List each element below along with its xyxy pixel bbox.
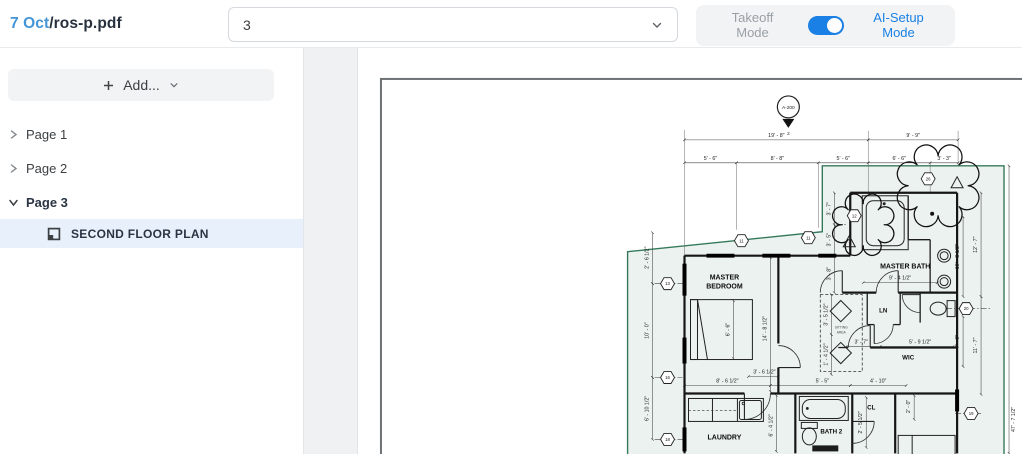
dim-label: 3' - 6 1/2" xyxy=(753,370,775,376)
keynote-tag: 19 xyxy=(969,411,974,416)
tree-item-page-3[interactable]: Page 3 xyxy=(0,185,303,219)
floor-plan-canvas[interactable]: A-200 2 19' - 8" 9' - 9" 5' - 6" xyxy=(357,47,1022,454)
keynote-tag: 11 xyxy=(806,235,811,240)
takeoff-mode-label: Takeoff Mode xyxy=(716,11,790,41)
toggle-knob xyxy=(827,18,842,33)
dim-label: 6' - 6" xyxy=(892,156,906,162)
chevron-down-icon xyxy=(651,19,663,31)
chevron-down-icon[interactable] xyxy=(8,197,26,208)
room-label-ln: LN xyxy=(879,308,888,315)
tree-leaf-second-floor-plan[interactable]: SECOND FLOOR PLAN xyxy=(0,219,303,248)
dim-label: 5' - 9 1/2" xyxy=(909,340,931,346)
shower-drain xyxy=(930,212,934,216)
dim-label: 2' - 5 1/2" xyxy=(858,411,864,433)
dim-label: 9' - 9" xyxy=(906,133,920,139)
dim-label: 10' - 0" xyxy=(645,322,651,339)
page-tree: Page 1 Page 2 Page 3 SECOND FLOOR PLAN xyxy=(0,117,303,248)
dim-label: 9' - 4 1/2" xyxy=(889,276,911,282)
vanity xyxy=(812,445,838,451)
keynote-tag: 11 xyxy=(739,238,744,243)
dim-label: 3' - 5" xyxy=(826,233,832,247)
pages-sidebar: Add... Page 1 Page 2 Page 3 SECOND FLO xyxy=(0,47,303,454)
drawing-viewer[interactable]: A-200 2 19' - 8" 9' - 9" 5' - 6" xyxy=(357,47,1022,454)
sitting-area-label: AREA xyxy=(837,331,847,335)
dim-label: 12' - 7" xyxy=(973,236,979,253)
breadcrumb-folder-link[interactable]: 7 Oct xyxy=(10,15,49,33)
dim-label: 8' - 6 1/2" xyxy=(716,378,738,384)
dim-label: 11' - 7" xyxy=(973,337,979,353)
keynote-tag: 13 xyxy=(665,281,670,286)
page-select-value: 3 xyxy=(243,17,251,33)
ai-setup-mode-label[interactable]: AI-Setup Mode xyxy=(862,11,936,41)
floorplan-icon xyxy=(47,227,61,241)
room-label-master-bedroom: MASTER xyxy=(710,275,739,282)
keynote-tag: 18 xyxy=(665,437,670,442)
dim-label: 5' - 6" xyxy=(837,156,851,162)
app-root: { "topbar": { "breadcrumb": { "folder": … xyxy=(0,0,1022,454)
dim-label: 4' - 10" xyxy=(870,378,887,384)
tree-item-label: Page 1 xyxy=(26,127,67,142)
dim-label: 3' - 7" xyxy=(826,202,832,216)
room-label-master-bedroom: BEDROOM xyxy=(706,284,743,291)
dim-label: 6' - 10 1/2" xyxy=(645,396,651,421)
dim-label: 3' - 5 1/2" xyxy=(823,303,829,325)
breadcrumb: 7 Oct/ros-p.pdf xyxy=(10,0,122,47)
page-number-select[interactable]: 3 xyxy=(228,7,678,42)
callout-sheet-label: A-200 xyxy=(782,105,795,111)
keynote-tag: 16 xyxy=(665,375,670,380)
room-label-cl: CL xyxy=(867,404,875,411)
dim-label: 47' - 7 1/2" xyxy=(1011,407,1017,432)
dim-label: 8' - 8" xyxy=(771,156,785,162)
dim-label: 2' - 0" xyxy=(906,400,912,414)
dim-label: 14' - 8 1/2" xyxy=(762,316,768,341)
dim-label: 19' - 8" xyxy=(768,133,785,139)
add-button[interactable]: Add... xyxy=(8,69,274,101)
panel-gutter[interactable] xyxy=(303,47,358,454)
tree-item-label: Page 2 xyxy=(26,161,67,176)
chevron-right-icon[interactable] xyxy=(8,129,26,140)
dim-label: 6' - 4 1/2" xyxy=(768,414,774,436)
room-label-master-bath: MASTER BATH xyxy=(880,264,930,271)
breadcrumb-file: /ros-p.pdf xyxy=(49,15,121,33)
dim-label: 6' - 6" xyxy=(725,323,731,337)
chevron-right-icon[interactable] xyxy=(8,163,26,174)
sitting-area-label: SITTING xyxy=(835,326,848,330)
tree-item-label: Page 3 xyxy=(26,195,68,210)
plus-icon xyxy=(103,80,114,91)
sheet-name-label: SECOND FLOOR PLAN xyxy=(71,227,209,241)
dim-label: 3' - 7" xyxy=(855,340,869,346)
keynote-tag: 26 xyxy=(926,176,931,181)
dim-label: 1' - 4 1/2" xyxy=(823,343,829,365)
add-button-label: Add... xyxy=(123,77,160,93)
delta-number: 1 xyxy=(848,242,850,246)
keynote-tag: 20 xyxy=(964,306,969,311)
room-label-bath2: BATH 2 xyxy=(820,428,842,435)
room-label-wic: WIC xyxy=(902,355,915,362)
callout-number: 2 xyxy=(787,131,790,136)
dim-label: 2' - 6 1/2" xyxy=(645,246,651,268)
mode-toggle-switch[interactable] xyxy=(808,16,844,35)
chevron-down-icon xyxy=(169,80,179,90)
dim-label: 5' - 6" xyxy=(704,156,718,162)
tree-item-page-2[interactable]: Page 2 xyxy=(0,151,303,185)
dim-label: 3' - 3" xyxy=(937,156,951,162)
room-label-laundry: LAUNDRY xyxy=(708,434,742,441)
tree-item-page-1[interactable]: Page 1 xyxy=(0,117,303,151)
dim-label: 5' - 5" xyxy=(816,378,830,384)
mode-toggle-group: Takeoff Mode AI-Setup Mode xyxy=(696,5,955,46)
top-toolbar: 7 Oct/ros-p.pdf 3 Takeoff Mode AI-Setup … xyxy=(0,0,1022,48)
keynote-tag: 12 xyxy=(852,213,857,218)
